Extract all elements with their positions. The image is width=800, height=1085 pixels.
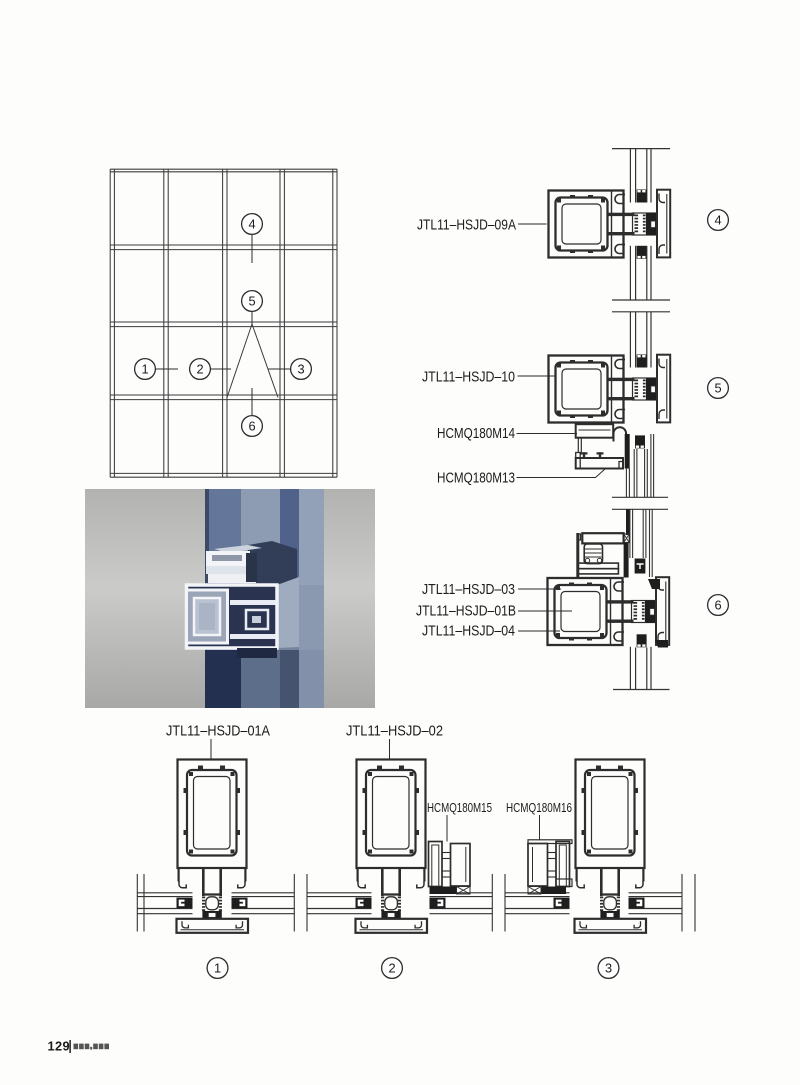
svg-text:4: 4 bbox=[248, 217, 255, 232]
svg-text:JTL11–HSJD–03: JTL11–HSJD–03 bbox=[422, 581, 515, 598]
svg-text:HCMQ180M13: HCMQ180M13 bbox=[437, 470, 515, 487]
svg-text:6: 6 bbox=[248, 419, 255, 434]
svg-text:JTL11–HSJD–09A: JTL11–HSJD–09A bbox=[417, 217, 516, 234]
svg-text:JTL11–HSJD–10: JTL11–HSJD–10 bbox=[422, 369, 515, 386]
svg-text:2: 2 bbox=[388, 961, 395, 976]
svg-text:3: 3 bbox=[605, 961, 612, 976]
svg-text:1: 1 bbox=[141, 362, 148, 377]
svg-text:6: 6 bbox=[714, 598, 721, 613]
svg-text:1: 1 bbox=[214, 961, 221, 976]
svg-text:2: 2 bbox=[196, 362, 203, 377]
svg-text:5: 5 bbox=[714, 381, 721, 396]
svg-text:JTL11–HSJD–01A: JTL11–HSJD–01A bbox=[166, 723, 270, 740]
svg-text:4: 4 bbox=[714, 213, 721, 228]
svg-text:129: 129 bbox=[48, 1039, 71, 1054]
svg-text:HCMQ180M15: HCMQ180M15 bbox=[427, 800, 492, 815]
svg-text:3: 3 bbox=[297, 362, 304, 377]
svg-text:HCMQ180M16: HCMQ180M16 bbox=[506, 800, 572, 815]
svg-text:JTL11–HSJD–04: JTL11–HSJD–04 bbox=[422, 623, 515, 640]
svg-text:JTL11–HSJD–01B: JTL11–HSJD–01B bbox=[416, 603, 516, 620]
svg-text:JTL11–HSJD–02: JTL11–HSJD–02 bbox=[346, 723, 443, 740]
svg-text:HCMQ180M14: HCMQ180M14 bbox=[437, 425, 515, 442]
svg-text:5: 5 bbox=[248, 294, 255, 309]
